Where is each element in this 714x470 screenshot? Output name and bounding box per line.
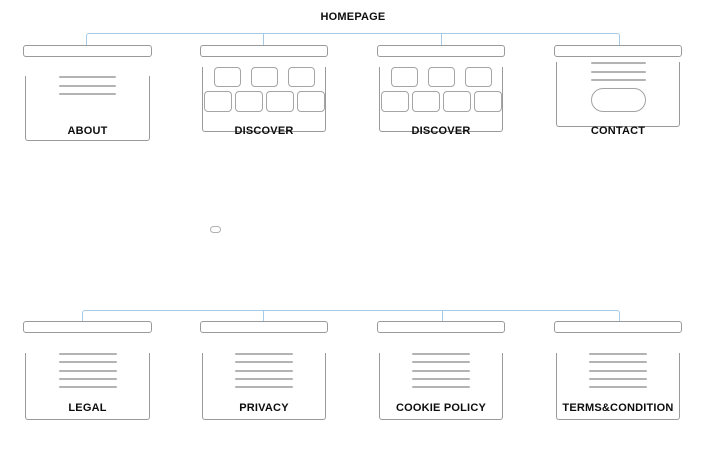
wireframe-text-block <box>203 353 325 388</box>
wireframe-card-row <box>203 91 325 112</box>
wireframe-card <box>214 67 241 87</box>
wireframe-text-line <box>589 386 647 388</box>
connector-drop <box>263 311 264 321</box>
collapsed-node-ellipse[interactable] <box>210 226 221 233</box>
page-node-discover-2[interactable] <box>377 45 505 132</box>
wireframe-text-line <box>589 370 647 372</box>
wireframe-card <box>204 91 232 112</box>
wireframe-card-row <box>203 67 325 87</box>
connector-top-tree <box>86 33 620 45</box>
connector-drop <box>442 311 443 321</box>
node-label-discover-2[interactable]: DISCOVER <box>367 125 515 137</box>
wireframe-text-line <box>235 386 293 388</box>
node-label-contact[interactable]: CONTACT <box>544 125 692 137</box>
wireframe-text-line <box>589 353 647 355</box>
wireframe-text-line <box>235 361 293 363</box>
node-label-about[interactable]: ABOUT <box>13 125 162 137</box>
wireframe-header-bar <box>23 45 152 57</box>
wireframe-text-block <box>26 76 149 95</box>
wireframe-text-line <box>589 361 647 363</box>
wireframe-text-block <box>380 353 502 388</box>
wireframe-text-line <box>591 79 646 81</box>
wireframe-text-block <box>557 62 679 81</box>
wireframe-header-bar <box>23 321 152 333</box>
wireframe-text-line <box>59 85 116 87</box>
wireframe-text-block <box>26 353 149 388</box>
wireframe-card <box>443 91 471 112</box>
wireframe-text-line <box>235 370 293 372</box>
wireframe-text-line <box>589 378 647 380</box>
wireframe-text-block <box>557 353 679 388</box>
wireframe-header-bar <box>554 45 682 57</box>
wireframe-text-line <box>235 378 293 380</box>
node-label-privacy[interactable]: PRIVACY <box>190 402 338 414</box>
node-label-terms-condition[interactable]: TERMS&CONDITION <box>544 402 692 414</box>
node-label-discover-1[interactable]: DISCOVER <box>190 125 338 137</box>
wireframe-text-line <box>412 370 470 372</box>
wireframe-text-line <box>59 76 116 78</box>
node-label-legal[interactable]: LEGAL <box>13 402 162 414</box>
wireframe-card <box>288 67 315 87</box>
page-node-discover-1[interactable] <box>200 45 328 132</box>
wireframe-body <box>379 67 503 132</box>
connector-bottom-tree <box>82 310 620 321</box>
page-node-contact[interactable] <box>554 45 682 127</box>
sitemap-canvas: HOMEPAGE ABOUT <box>0 0 714 470</box>
wireframe-card <box>412 91 440 112</box>
wireframe-text-line <box>412 378 470 380</box>
wireframe-card <box>428 67 455 87</box>
wireframe-header-bar <box>377 45 505 57</box>
wireframe-card-row <box>380 67 502 87</box>
wireframe-text-line <box>591 62 646 64</box>
wireframe-body <box>556 62 680 127</box>
wireframe-header-bar <box>200 321 328 333</box>
wireframe-text-line <box>59 361 117 363</box>
wireframe-text-line <box>235 353 293 355</box>
wireframe-header-bar <box>377 321 505 333</box>
wireframe-text-line <box>59 378 117 380</box>
wireframe-text-line <box>59 370 117 372</box>
wireframe-card-row <box>380 91 502 112</box>
wireframe-card <box>266 91 294 112</box>
wireframe-text-line <box>59 93 116 95</box>
connector-drop <box>263 34 264 45</box>
wireframe-body <box>202 67 326 132</box>
wireframe-text-line <box>59 386 117 388</box>
wireframe-text-line <box>412 361 470 363</box>
connector-drop <box>441 34 442 45</box>
wireframe-text-line <box>412 353 470 355</box>
wireframe-card <box>391 67 418 87</box>
wireframe-text-line <box>591 71 646 73</box>
wireframe-card <box>251 67 278 87</box>
wireframe-card <box>465 67 492 87</box>
wireframe-button <box>591 88 646 112</box>
node-label-cookie-policy[interactable]: COOKIE POLICY <box>367 402 515 414</box>
node-label-homepage[interactable]: HOMEPAGE <box>283 11 423 23</box>
wireframe-header-bar <box>200 45 328 57</box>
wireframe-card <box>381 91 409 112</box>
wireframe-text-line <box>412 386 470 388</box>
wireframe-header-bar <box>554 321 682 333</box>
wireframe-card <box>235 91 263 112</box>
wireframe-card <box>297 91 325 112</box>
wireframe-card <box>474 91 502 112</box>
wireframe-text-line <box>59 353 117 355</box>
